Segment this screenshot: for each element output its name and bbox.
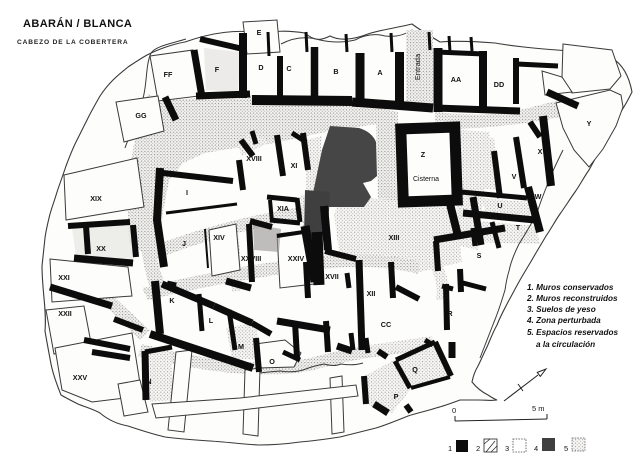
svg-text:Y: Y: [587, 119, 592, 128]
svg-text:XXII: XXII: [58, 309, 72, 318]
svg-text:Entrada: Entrada: [413, 53, 422, 80]
svg-text:4: 4: [534, 444, 538, 453]
svg-text:XIII: XIII: [389, 233, 400, 242]
svg-text:AA: AA: [451, 75, 461, 84]
svg-text:K: K: [169, 296, 175, 305]
svg-text:2: 2: [476, 444, 480, 453]
svg-text:R: R: [447, 309, 453, 318]
svg-text:Z: Z: [421, 150, 426, 159]
svg-text:XX: XX: [96, 244, 106, 253]
svg-text:ABARÁN / BLANCA: ABARÁN / BLANCA: [23, 17, 132, 30]
svg-text:Q: Q: [412, 365, 418, 374]
svg-text:1: 1: [448, 444, 452, 453]
svg-text:T: T: [516, 223, 521, 232]
svg-text:XXVIII: XXVIII: [241, 254, 261, 263]
svg-text:CC: CC: [381, 320, 391, 329]
svg-text:X: X: [538, 147, 543, 156]
svg-text:V: V: [512, 172, 517, 181]
svg-text:J: J: [182, 239, 186, 248]
svg-text:O: O: [269, 357, 275, 366]
svg-text:M: M: [238, 342, 244, 351]
svg-text:5 m: 5 m: [532, 404, 545, 413]
svg-text:4. Zona perturbada: 4. Zona perturbada: [526, 316, 601, 325]
svg-text:XVIII: XVIII: [246, 154, 262, 163]
svg-text:XVII: XVII: [325, 272, 339, 281]
svg-text:B: B: [333, 67, 338, 76]
svg-text:U: U: [497, 201, 502, 210]
svg-text:GG: GG: [135, 111, 147, 120]
svg-text:Cisterna: Cisterna: [413, 176, 439, 183]
svg-text:I: I: [186, 188, 188, 197]
svg-text:XI: XI: [291, 161, 298, 170]
svg-text:5. Espacios reservados: 5. Espacios reservados: [527, 328, 618, 337]
svg-text:XIX: XIX: [90, 194, 102, 203]
svg-text:E: E: [257, 28, 262, 37]
svg-text:3. Suelos de yeso: 3. Suelos de yeso: [527, 305, 596, 314]
svg-text:XXI: XXI: [58, 273, 70, 282]
svg-text:CABEZO DE LA COBERTERA: CABEZO DE LA COBERTERA: [17, 39, 129, 46]
svg-text:5: 5: [564, 444, 568, 453]
svg-text:XIA: XIA: [277, 204, 289, 213]
svg-text:a la circulación: a la circulación: [536, 340, 595, 349]
svg-text:1. Muros conservados: 1. Muros conservados: [527, 283, 614, 292]
svg-text:C: C: [286, 64, 291, 73]
svg-text:DD: DD: [494, 80, 504, 89]
svg-text:A: A: [377, 68, 382, 77]
svg-text:XIV: XIV: [213, 233, 225, 242]
svg-text:FF: FF: [164, 70, 173, 79]
svg-text:D: D: [258, 63, 263, 72]
svg-text:2. Muros reconstruidos: 2. Muros reconstruidos: [526, 294, 618, 303]
svg-text:0: 0: [452, 406, 456, 415]
svg-text:XXV: XXV: [73, 373, 88, 382]
svg-text:F: F: [215, 65, 220, 74]
svg-text:W: W: [535, 192, 542, 201]
svg-text:S: S: [477, 251, 482, 260]
svg-text:XII: XII: [367, 289, 376, 298]
svg-text:L: L: [209, 316, 214, 325]
svg-text:N: N: [146, 377, 151, 386]
svg-text:P: P: [394, 392, 399, 401]
svg-text:3: 3: [505, 444, 509, 453]
svg-text:XXIV: XXIV: [288, 254, 305, 263]
